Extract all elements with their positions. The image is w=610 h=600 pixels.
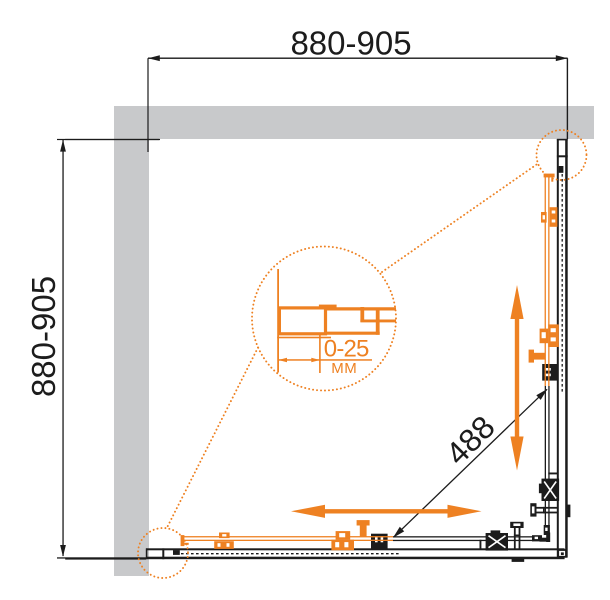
svg-text:880-905: 880-905 [25,276,62,397]
svg-text:ММ: ММ [331,360,357,377]
svg-text:880-905: 880-905 [290,24,411,61]
svg-text:0-25: 0-25 [324,335,369,362]
